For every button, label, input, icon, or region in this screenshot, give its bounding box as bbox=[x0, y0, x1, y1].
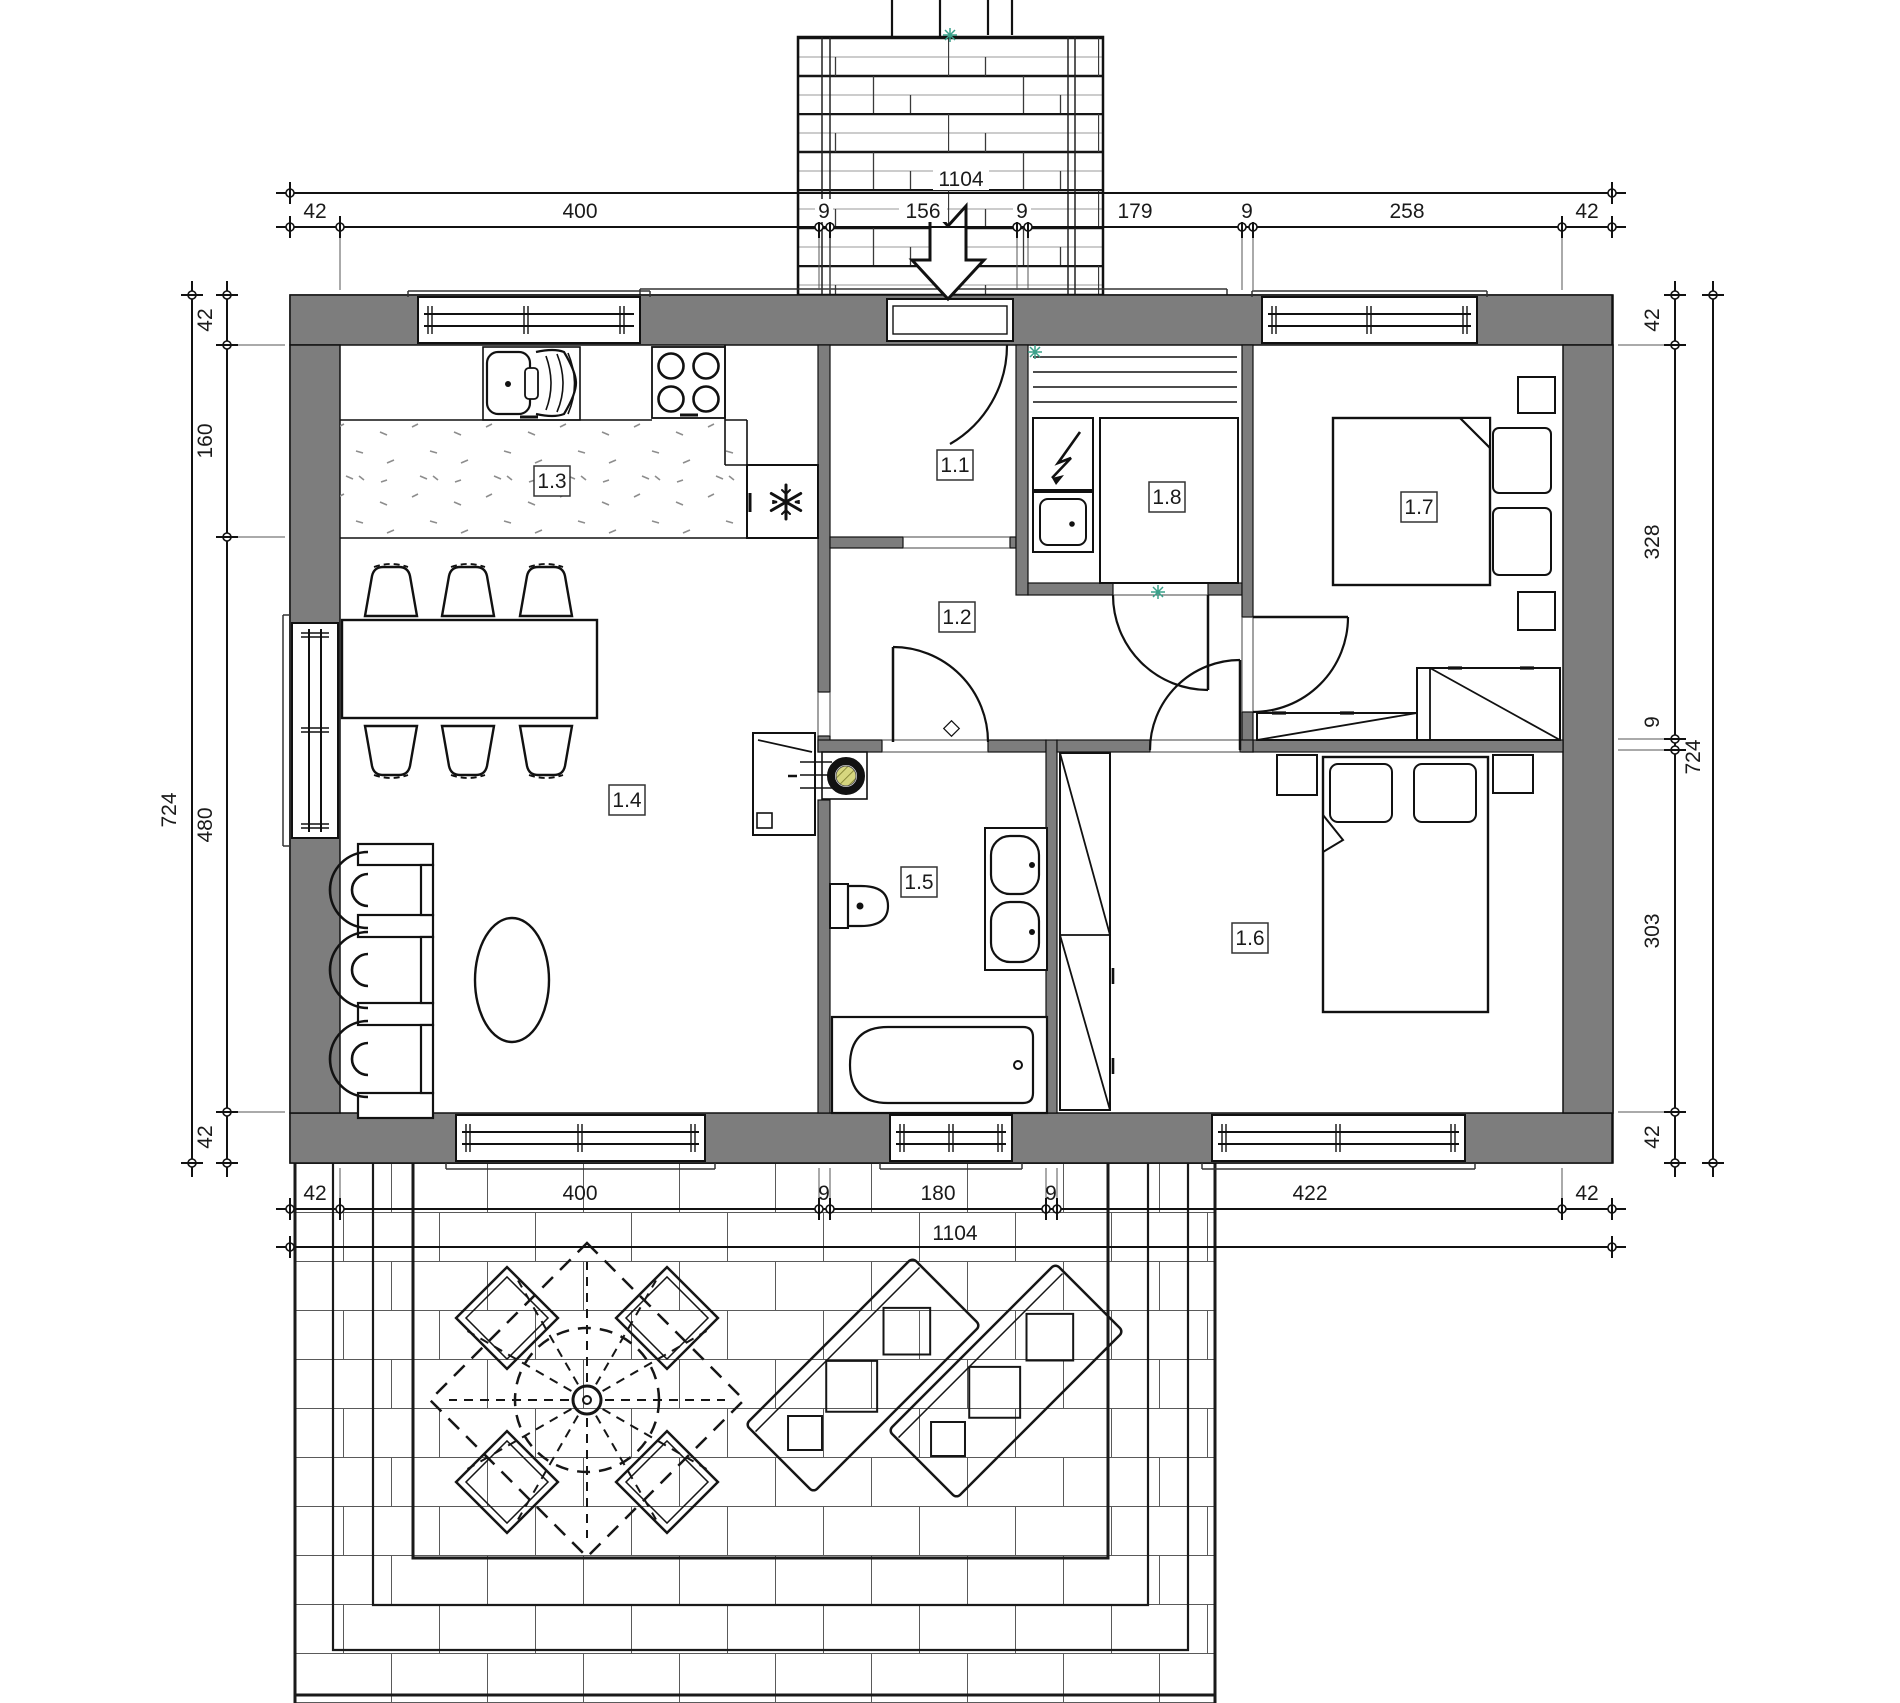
dim-text: 156 bbox=[905, 200, 940, 223]
dining-area bbox=[342, 564, 597, 778]
toilet bbox=[830, 884, 888, 928]
tap bbox=[1029, 862, 1035, 868]
utility-sink bbox=[1033, 492, 1093, 552]
room-label-text: 1.6 bbox=[1235, 927, 1264, 950]
wall-bedroom17-left bbox=[1242, 345, 1253, 617]
room-label-text: 1.8 bbox=[1152, 486, 1181, 509]
room-label-text: 1.2 bbox=[942, 606, 971, 629]
bathtub bbox=[832, 1017, 1047, 1113]
window-sill bbox=[283, 615, 290, 846]
floor-plan-drawing: 42 400 9 156 9 179 9 258 42 1104 42 400 … bbox=[0, 0, 1900, 1703]
room-label-1.5: 1.5 bbox=[901, 867, 937, 897]
wall-hall-utility bbox=[1016, 345, 1028, 595]
dim-lines-left bbox=[192, 281, 227, 1177]
dim-text-total: 724 bbox=[1682, 739, 1705, 774]
fridge bbox=[747, 465, 818, 538]
sink-tap bbox=[525, 368, 538, 399]
window-kitchen bbox=[408, 291, 650, 343]
dim-text: 9 bbox=[1016, 200, 1028, 223]
green-marker-icon bbox=[943, 28, 957, 42]
heater-core bbox=[836, 766, 856, 786]
chair bbox=[365, 564, 417, 616]
dim-text: 160 bbox=[194, 423, 217, 458]
wall-kitchen-hall bbox=[818, 345, 830, 692]
dim-text: 42 bbox=[303, 1182, 326, 1205]
room-label-text: 1.1 bbox=[940, 454, 969, 477]
dim-text: 42 bbox=[1575, 200, 1598, 223]
chair bbox=[442, 564, 494, 616]
wall-hall-corridor bbox=[830, 537, 903, 548]
dim-text-total: 1104 bbox=[932, 1222, 977, 1245]
low-cabinet bbox=[1257, 713, 1417, 740]
dim-text: 328 bbox=[1641, 524, 1664, 559]
dim-text: 480 bbox=[194, 807, 217, 842]
room-label-text: 1.4 bbox=[612, 789, 642, 812]
wall-bedrooms-divider bbox=[1253, 740, 1563, 752]
pillow bbox=[1330, 764, 1392, 822]
room-label-1.1: 1.1 bbox=[937, 450, 973, 480]
terrace bbox=[295, 1163, 1215, 1703]
room-label-1.6: 1.6 bbox=[1232, 923, 1268, 953]
dim-text: 42 bbox=[194, 308, 217, 331]
dining-table bbox=[342, 620, 597, 718]
dim-text: 9 bbox=[818, 200, 830, 223]
window-living bbox=[446, 1115, 715, 1169]
floor-plan-page: 42 400 9 156 9 179 9 258 42 1104 42 400 … bbox=[0, 0, 1900, 1703]
room-label-1.2: 1.2 bbox=[939, 602, 975, 632]
wardrobe bbox=[1417, 668, 1560, 740]
green-marker-icon bbox=[1028, 345, 1042, 359]
wall-corridor-bath bbox=[818, 740, 882, 752]
dim-text: 9 bbox=[1241, 200, 1253, 223]
dim-text: 42 bbox=[194, 1125, 217, 1148]
wall-hall-corridor bbox=[1010, 537, 1016, 548]
dim-text: 400 bbox=[562, 1182, 597, 1205]
dim-text: 303 bbox=[1641, 913, 1664, 948]
dim-text: 180 bbox=[920, 1182, 955, 1205]
green-marker-icon bbox=[1151, 585, 1165, 599]
dim-text: 179 bbox=[1117, 200, 1152, 223]
dim-texts-left: 42 160 480 42 724 bbox=[158, 308, 217, 1148]
chimney-stubs bbox=[892, 0, 1012, 37]
dim-text: 258 bbox=[1389, 200, 1424, 223]
room-label-1.3: 1.3 bbox=[534, 466, 570, 496]
dim-text: 42 bbox=[1575, 1182, 1598, 1205]
dim-text-total: 1104 bbox=[938, 168, 983, 191]
double-washbasin bbox=[985, 828, 1047, 970]
bathtub-basin bbox=[850, 1027, 1033, 1103]
window-dining bbox=[283, 615, 338, 846]
room-label-text: 1.3 bbox=[537, 470, 566, 493]
dim-text-total: 724 bbox=[158, 792, 181, 827]
sink-drain bbox=[505, 381, 511, 387]
wall-corridor-bedroom16 bbox=[1240, 740, 1253, 752]
toilet-cistern bbox=[830, 884, 848, 928]
chair bbox=[365, 726, 417, 778]
pillow bbox=[1414, 764, 1476, 822]
wall-corridor-bedroom16 bbox=[1057, 740, 1150, 752]
nightstand bbox=[1518, 377, 1555, 413]
room-label-1.8: 1.8 bbox=[1149, 482, 1185, 512]
room-label-text: 1.5 bbox=[904, 871, 933, 894]
chair bbox=[520, 564, 572, 616]
wall-corridor-bath bbox=[988, 740, 1046, 752]
pillow bbox=[1493, 508, 1551, 575]
room-label-1.7: 1.7 bbox=[1401, 492, 1437, 522]
dim-lines-right bbox=[1675, 281, 1713, 1177]
dim-text: 42 bbox=[1641, 308, 1664, 331]
wall-utility-bottom bbox=[1028, 583, 1113, 595]
wall-utility-bottom bbox=[1208, 583, 1242, 595]
room-label-1.4: 1.4 bbox=[609, 785, 645, 815]
dim-text: 42 bbox=[303, 200, 326, 223]
dim-text: 9 bbox=[1045, 1182, 1057, 1205]
chair bbox=[442, 726, 494, 778]
dim-text: 9 bbox=[818, 1182, 830, 1205]
dim-text: 400 bbox=[562, 200, 597, 223]
nightstand bbox=[1493, 755, 1533, 793]
dim-text: 422 bbox=[1292, 1182, 1327, 1205]
window-bathroom bbox=[880, 1115, 1022, 1169]
window-bedroom16 bbox=[1202, 1115, 1475, 1169]
dim-text: 42 bbox=[1641, 1125, 1664, 1148]
wall-right bbox=[1563, 345, 1613, 1113]
coffee-table bbox=[475, 918, 549, 1042]
dim-text: 9 bbox=[1641, 716, 1664, 728]
wardrobe bbox=[1060, 753, 1113, 1110]
window-sill bbox=[1202, 1163, 1475, 1169]
tap bbox=[1029, 929, 1035, 935]
room-label-text: 1.7 bbox=[1404, 496, 1433, 519]
toilet-bowl bbox=[848, 886, 888, 926]
window-bedroom17 bbox=[1252, 291, 1487, 343]
wall-living-bath bbox=[818, 800, 830, 1113]
dim-texts-right: 42 328 9 303 42 724 bbox=[1641, 308, 1705, 1148]
pillow bbox=[1493, 428, 1551, 493]
washing-machine bbox=[1033, 418, 1093, 490]
nightstand bbox=[1277, 755, 1317, 795]
chair bbox=[520, 726, 572, 778]
nightstand bbox=[1518, 592, 1555, 630]
